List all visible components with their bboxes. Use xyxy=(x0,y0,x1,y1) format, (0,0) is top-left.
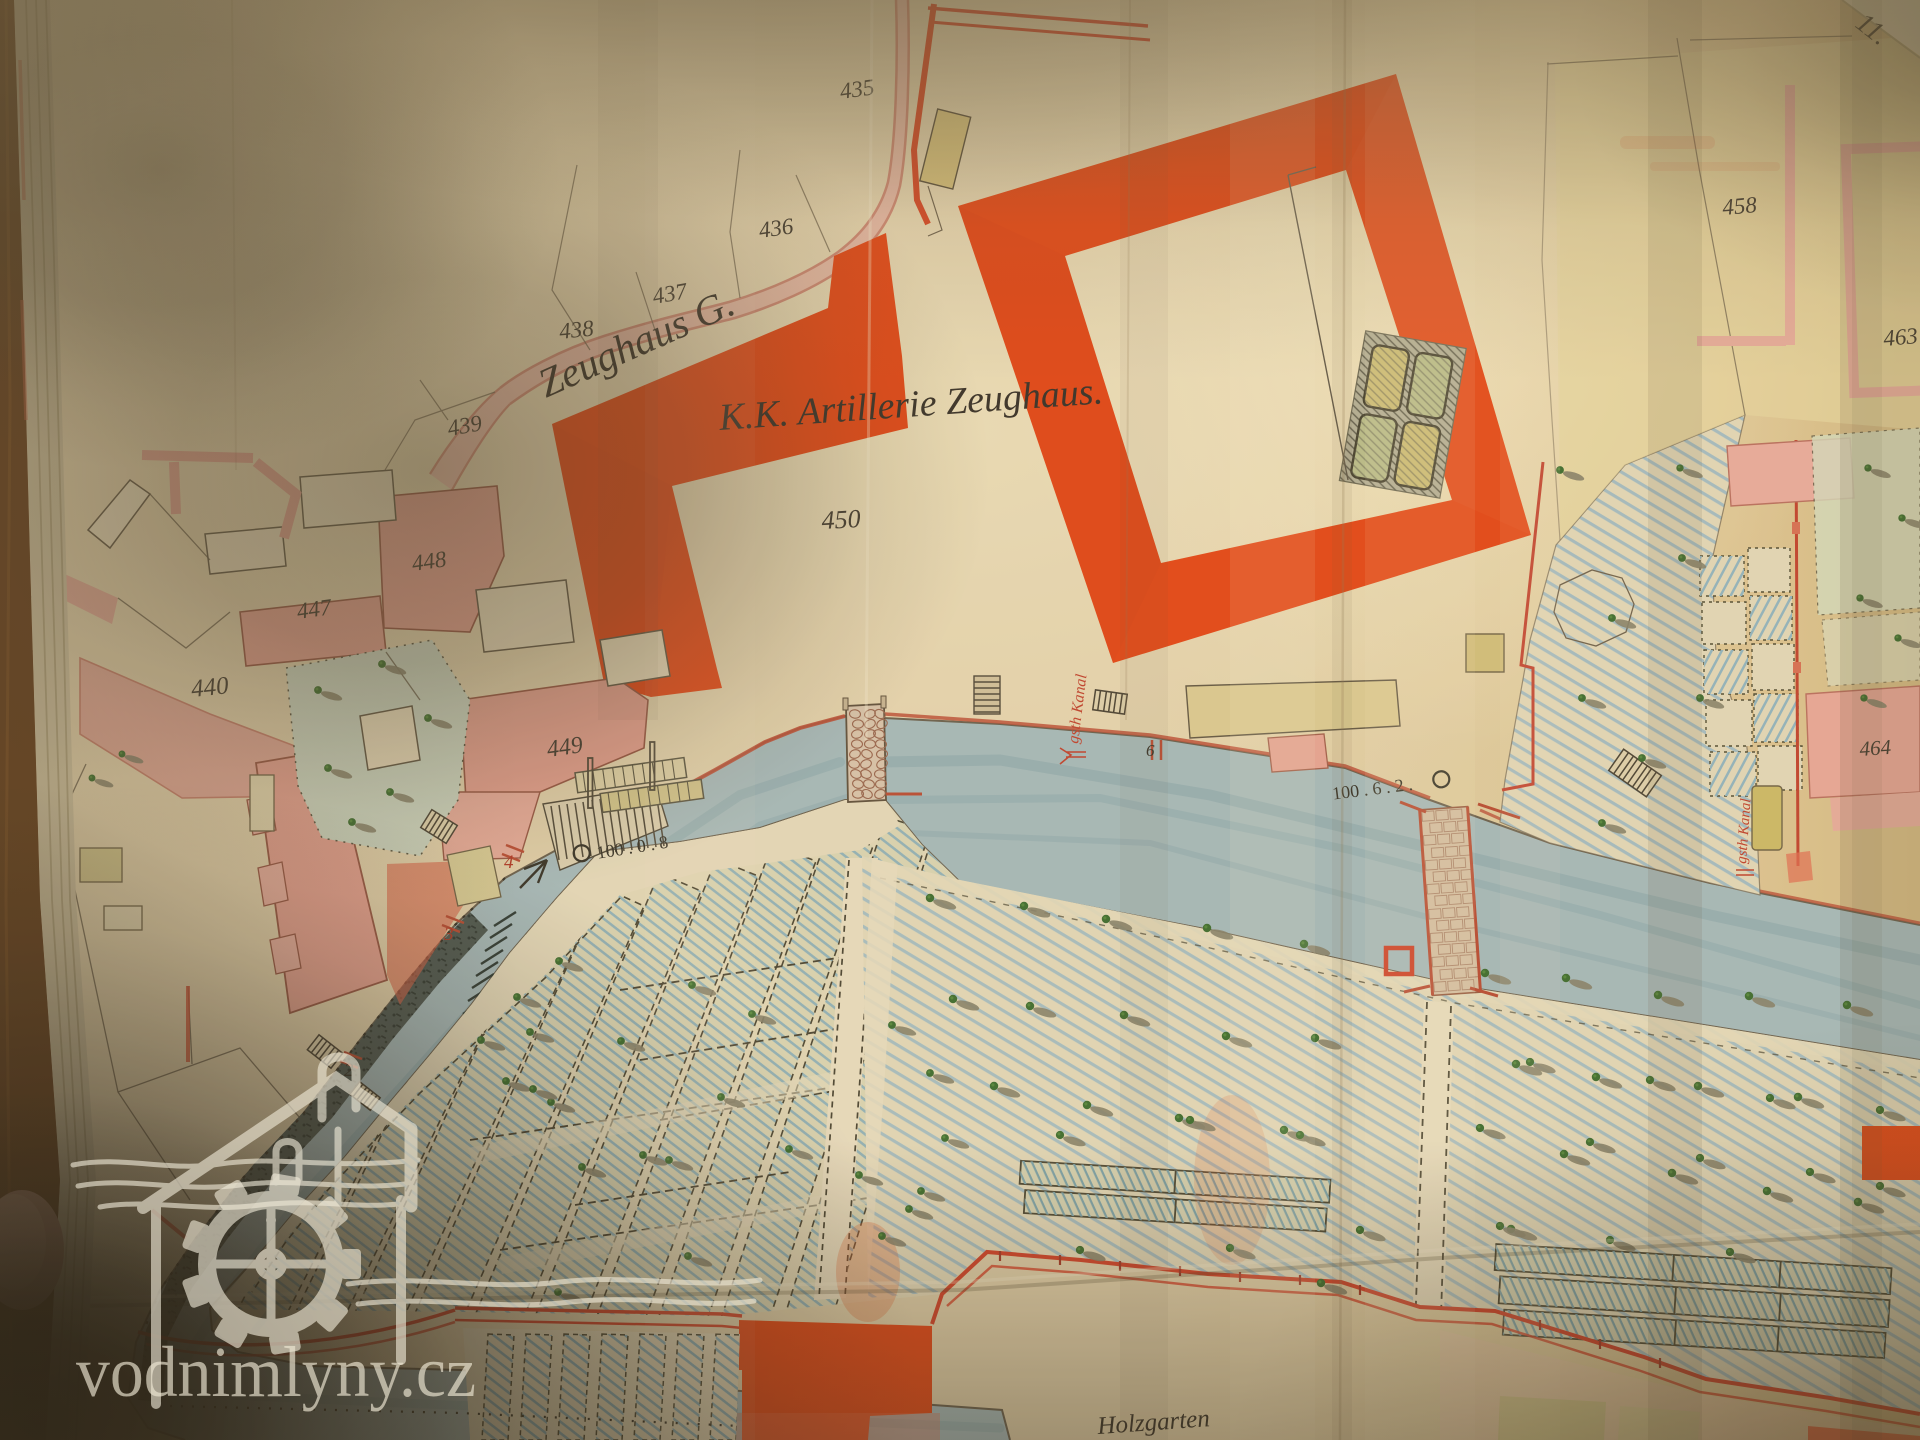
svg-text:vodnimlyny.cz: vodnimlyny.cz xyxy=(76,1332,476,1412)
